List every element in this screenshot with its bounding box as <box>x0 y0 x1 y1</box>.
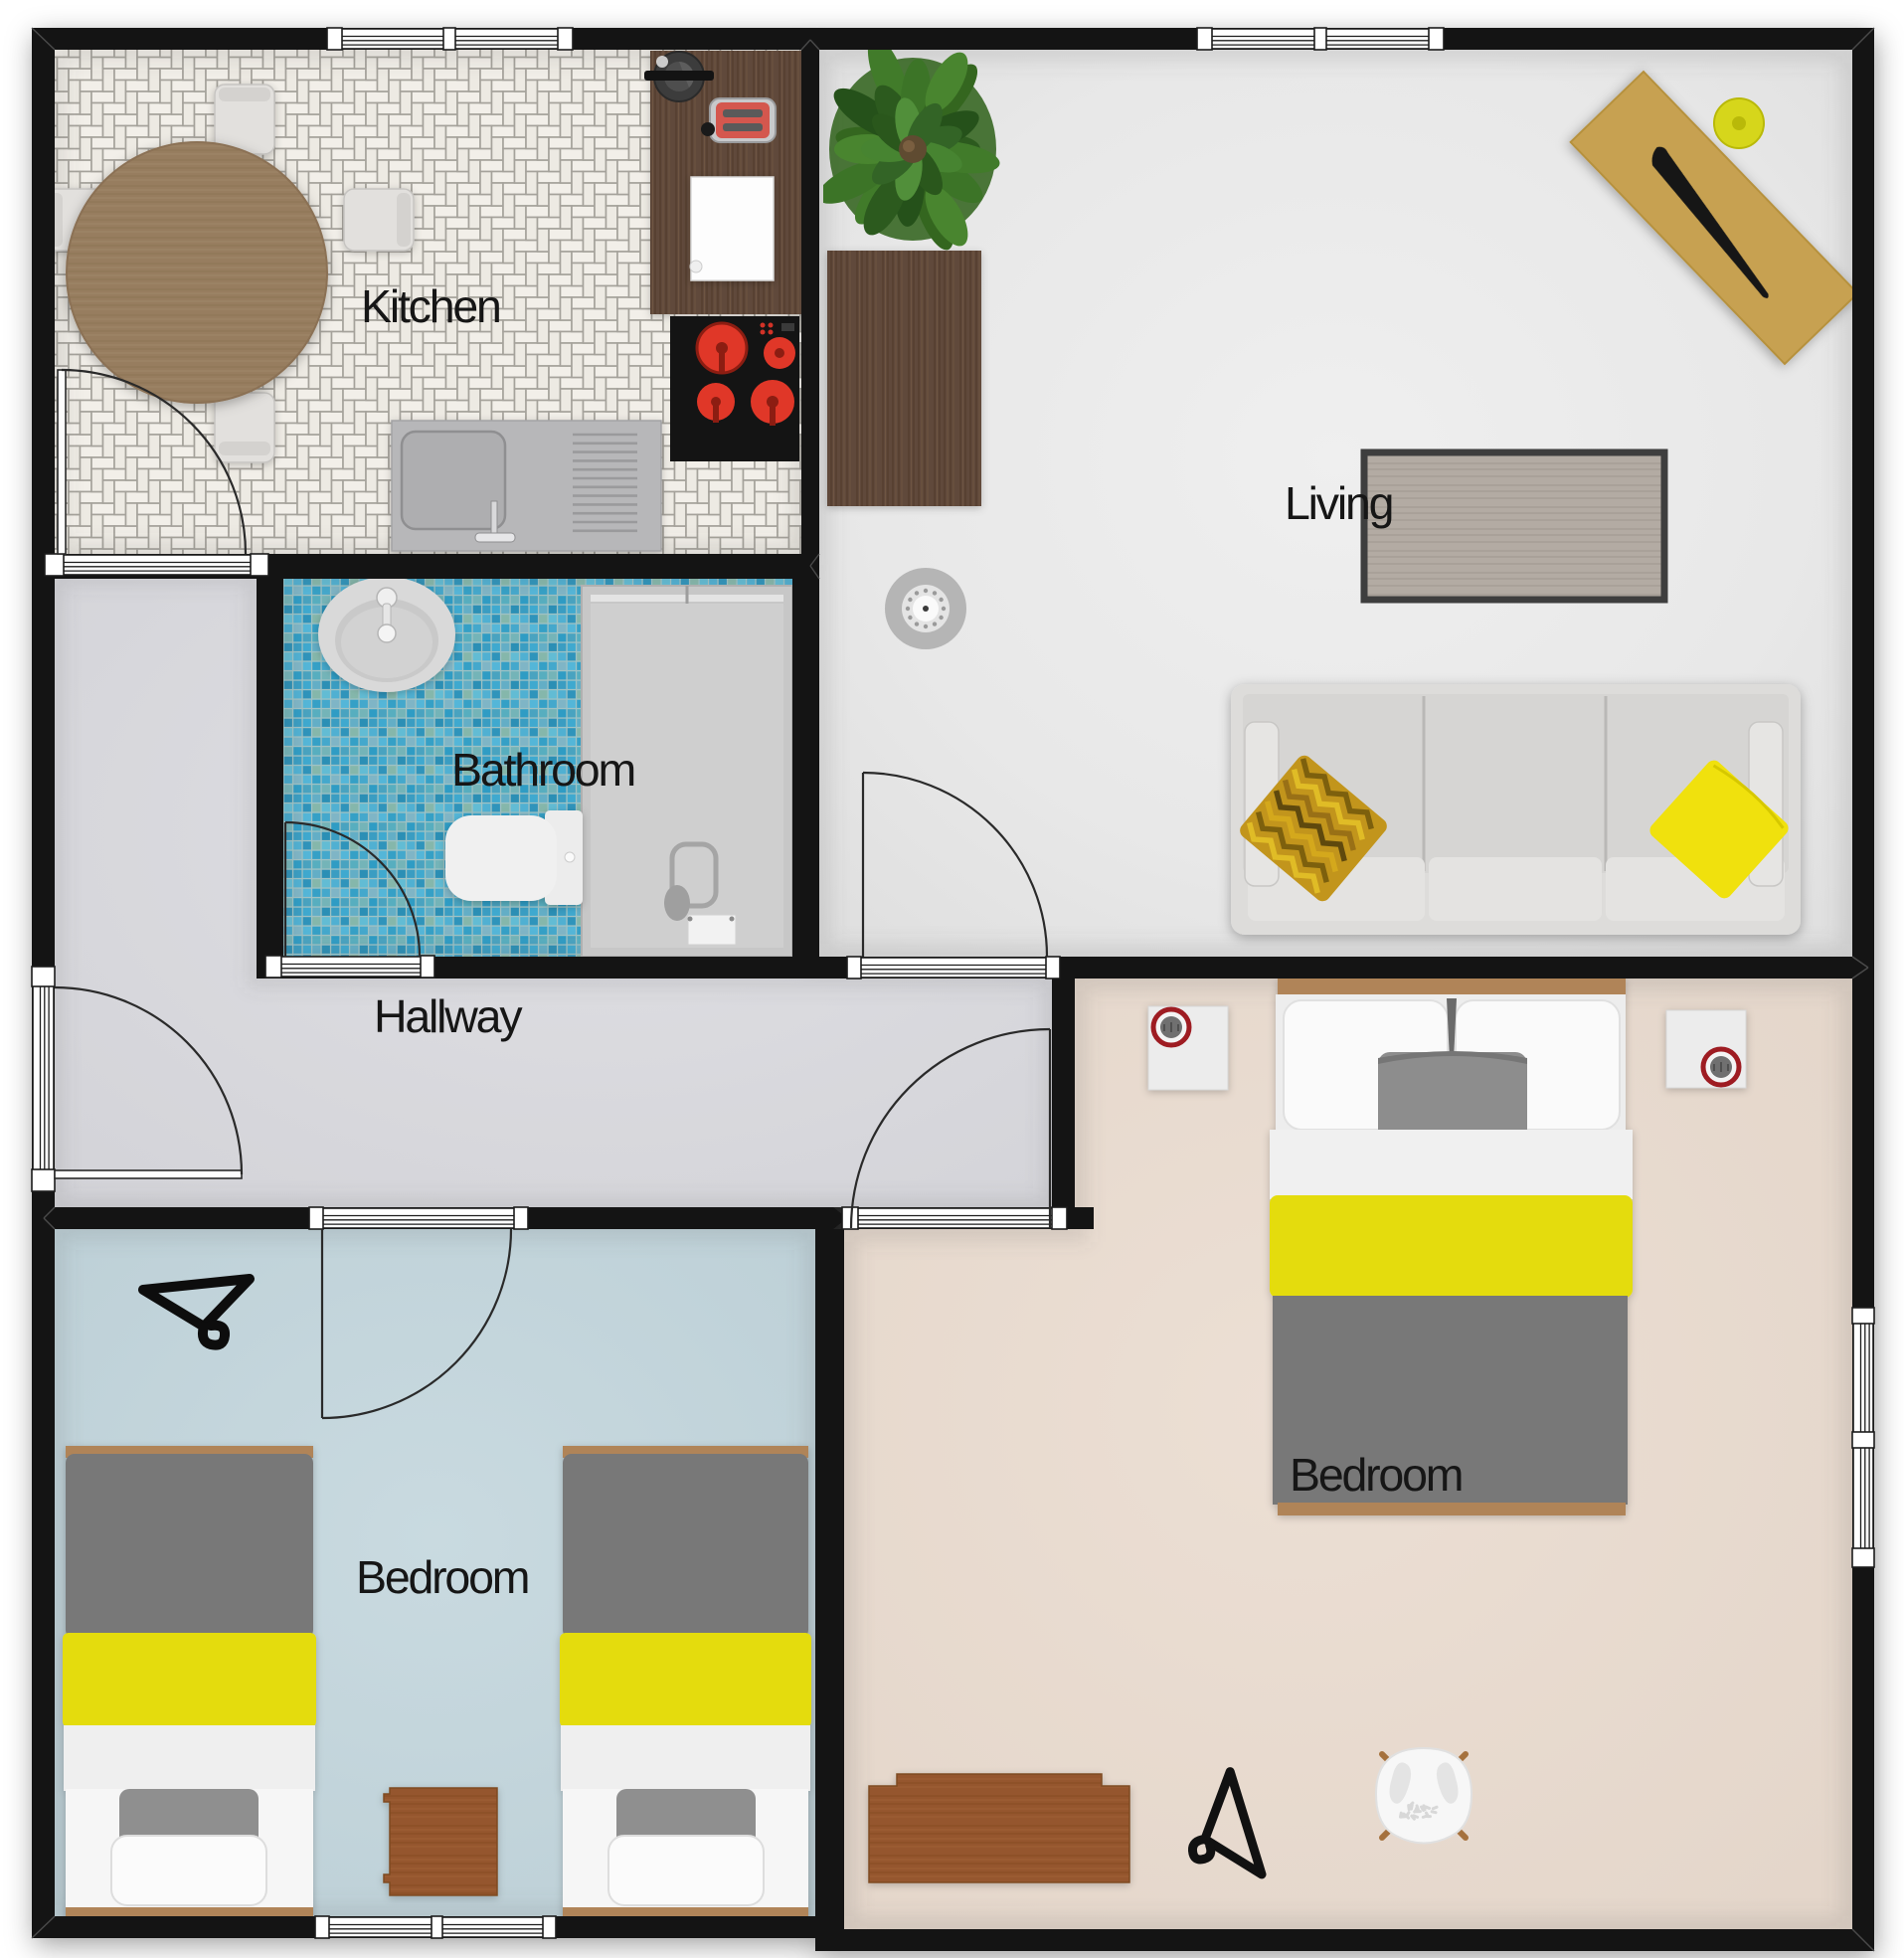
svg-text:Kitchen: Kitchen <box>361 280 500 332</box>
svg-text:Hallway: Hallway <box>374 990 523 1042</box>
svg-text:Bedroom: Bedroom <box>1290 1449 1462 1501</box>
svg-text:Living: Living <box>1285 477 1392 529</box>
svg-text:Bedroom: Bedroom <box>356 1551 528 1603</box>
svg-text:Bathroom: Bathroom <box>451 744 634 796</box>
